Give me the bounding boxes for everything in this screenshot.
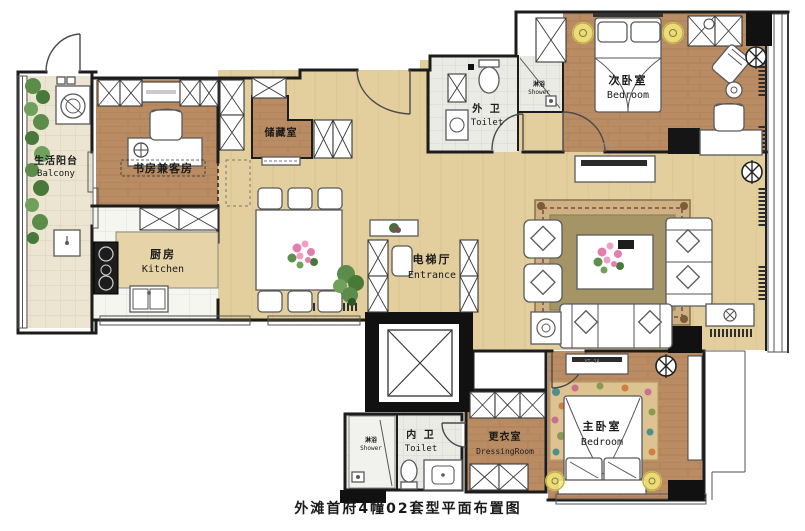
wardrobe-strip [688,356,702,460]
vanity [446,110,468,140]
bedside-lamp [572,22,594,44]
storage-label-cn: 储藏室 [264,126,298,139]
coffee-table [577,235,653,289]
sofa-bottom [560,304,672,348]
bedside-lamp [545,471,565,491]
entrance-label-en: Entrance [408,270,456,281]
master-label-en: Bedroom [581,437,623,448]
bedside-lamp [662,22,684,44]
armchair [524,264,562,302]
bedside-lamp [642,471,662,491]
kitchen-label-cn: 厨房 [150,247,176,261]
storage-room [262,157,300,165]
pillow [598,22,627,42]
entrance-label-cn: 电梯厅 [413,252,452,266]
bedroom2-label-en: Bedroom [607,90,649,101]
floor-plan-page: 生活阳台 Balcony 书房兼客房 储藏室 厨房 Kitchen 外 卫 To… [0,0,805,531]
armchair [524,220,562,258]
tv-cabinet-dark [668,128,700,154]
shower-top-label-cn: 淋浴 [533,80,546,88]
side-table [726,82,742,98]
dressing-label-en: DressingRoom [476,447,534,456]
kitchen-label-en: Kitchen [142,264,184,275]
outer-toilet-label-en: Toilet [471,118,504,128]
balcony-door [46,34,80,72]
side-table-lamp [531,312,561,344]
shower-top-label-en: Shower [528,89,550,96]
inner-toilet-label-en: Toilet [405,444,438,454]
shower-inner-label-en: Shower [360,445,382,452]
desk-chair [150,109,182,140]
vanity [424,460,462,490]
desk-chair [714,104,744,131]
washing-machine [56,86,90,124]
column [668,480,704,500]
column [746,12,772,46]
floor-plan-drawing: 生活阳台 Balcony 书房兼客房 储藏室 厨房 Kitchen 外 卫 To… [0,0,805,531]
headboard [558,480,646,494]
sofa-right [666,218,712,306]
plan-caption: 外滩首府4幢02套型平面布置图 [294,500,521,517]
toilet [479,60,499,93]
kitchen-sink [130,286,168,312]
console-se [706,304,754,326]
tv-console [575,156,655,182]
utility-sink [54,230,80,256]
pillow [631,22,660,42]
shower-inner-label-cn: 淋浴 [365,436,378,444]
balcony-label-cn: 生活阳台 [34,154,78,167]
dressing-label-cn: 更衣室 [489,430,522,443]
cooktop [94,242,118,294]
column [668,326,702,353]
tv [581,160,647,166]
balcony-label-en: Balcony [37,169,76,179]
inner-toilet-label-cn: 内 卫 [406,428,435,441]
outer-toilet-label-cn: 外 卫 [471,102,501,115]
bedroom2-label-cn: 次卧室 [609,73,648,87]
floor-code-bedroom2: VT-06 [599,143,614,149]
toilet [401,460,417,489]
master-label-cn: 主卧室 [583,419,622,433]
floor-code-master: VT-1A [584,359,599,365]
desk [700,130,762,155]
elevator-shaft [365,312,473,412]
study-label-cn: 书房兼客房 [133,161,193,175]
